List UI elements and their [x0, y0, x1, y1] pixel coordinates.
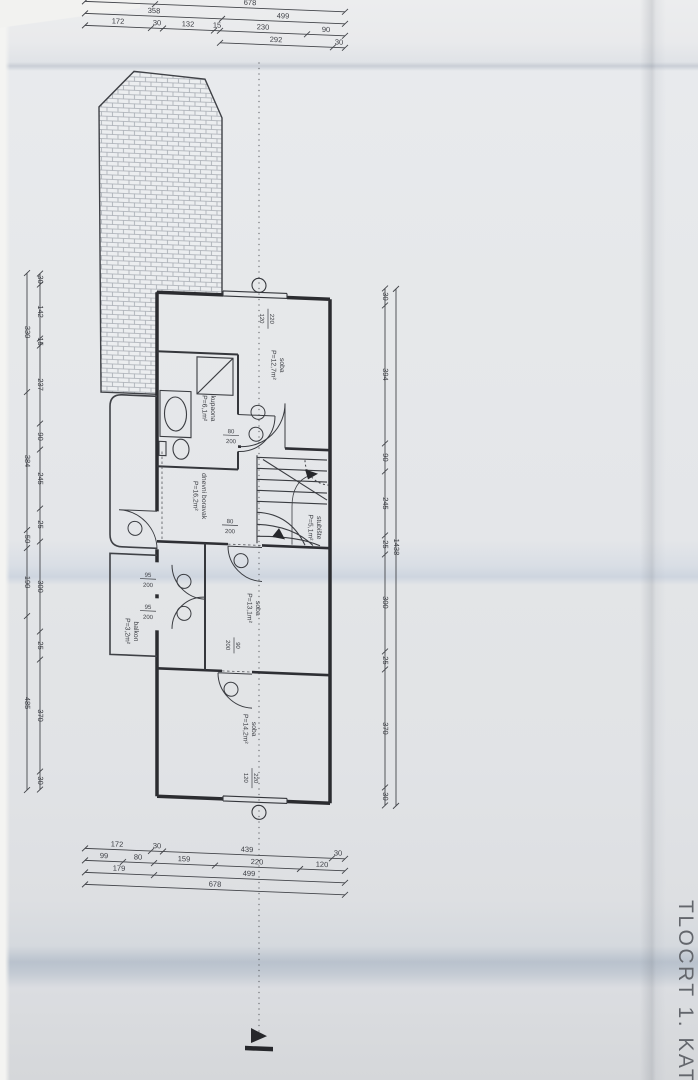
dim-label: 190 [23, 576, 32, 589]
svg-text:80: 80 [228, 429, 235, 435]
dim-label: 499 [243, 869, 256, 878]
dim-label: 370 [36, 709, 45, 722]
dim-label: 172 [112, 16, 125, 25]
section-line [245, 62, 273, 1052]
svg-text:95: 95 [145, 605, 152, 611]
dim-label: 25 [381, 656, 390, 665]
dim-label: 25 [381, 540, 390, 549]
dim-label: 50 [23, 535, 32, 544]
room-label: sobaP=12,7m² [270, 350, 285, 381]
terrace-hatch [99, 70, 222, 397]
svg-text:200: 200 [225, 529, 236, 535]
opening-dashes [162, 451, 262, 672]
room-label: sobaP=14,2m² [242, 714, 257, 745]
dim-label: 172 [111, 839, 124, 848]
window-top [223, 291, 287, 299]
curved-bay-wall [110, 394, 157, 548]
dim-label: 30 [335, 37, 343, 46]
dimension-chain-right: 30 394 90 245 25 300 25 370 30 1438 [381, 285, 401, 809]
room-label: sobaP=13,1m² [246, 593, 261, 624]
dim-label: 245 [381, 497, 390, 510]
svg-text:200: 200 [226, 439, 237, 445]
room-label: kupaonaP=6,1m² [201, 395, 216, 422]
dim-label: 292 [270, 35, 283, 44]
opening-label: 95 200 [140, 605, 156, 622]
svg-text:120: 120 [242, 773, 248, 784]
dim-label: 132 [182, 19, 195, 28]
dimension-chain-bottom: 172 30 439 30 99 80 159 220 120 179 499 … [82, 838, 348, 898]
room-label: stubišteP=5,1m² [307, 514, 322, 541]
dim-label: 142 [36, 305, 45, 318]
dimension-chain-top: 179 678 358 499 172 30 132 15 230 90 292… [82, 0, 348, 51]
dim-label: 485 [23, 697, 32, 710]
svg-text:90: 90 [234, 642, 240, 650]
dim-label: 120 [316, 860, 329, 869]
dim-label: 439 [241, 845, 254, 854]
dim-label: 300 [381, 596, 390, 609]
dim-label: 245 [36, 472, 45, 485]
opening-label: 220 120 [258, 308, 274, 329]
dim-label: 99 [100, 851, 108, 860]
dim-label: 330 [23, 326, 32, 339]
dim-label: 237 [36, 378, 45, 391]
svg-text:200: 200 [143, 615, 154, 621]
svg-text:120: 120 [258, 313, 264, 324]
dim-label: 300 [36, 580, 45, 593]
dim-label: 25 [36, 520, 45, 529]
svg-text:220: 220 [268, 314, 274, 325]
dim-label: 30 [381, 292, 390, 301]
dim-label: 179 [114, 0, 127, 2]
room-label: balkonP=3,2m² [124, 618, 139, 645]
svg-text:200: 200 [143, 583, 154, 589]
drawing-sheet: sobaP=12,7m² kupaonaP=6,1m² dnevni borav… [0, 0, 698, 1080]
dim-label: 80 [134, 852, 142, 861]
dim-label: 90 [36, 432, 45, 441]
plan-svg: sobaP=12,7m² kupaonaP=6,1m² dnevni borav… [0, 0, 698, 1080]
dim-label: 358 [148, 6, 161, 15]
dim-label: 90 [381, 453, 390, 462]
door-knob-circles [128, 400, 265, 698]
dim-label: 384 [23, 455, 32, 468]
dim-label: 15 [213, 21, 221, 30]
dim-label: 30 [153, 18, 161, 27]
section-circle-top [252, 278, 266, 293]
opening-label: 80 200 [222, 519, 238, 536]
door-swings [119, 397, 329, 711]
dim-label: 220 [251, 857, 264, 866]
opening-label: 80 200 [223, 429, 239, 446]
dim-label: 30 [381, 792, 390, 801]
opening-label: 220 120 [242, 768, 258, 789]
dim-label: 179 [113, 863, 126, 872]
dim-label: 30 [36, 776, 45, 785]
dim-label: 370 [381, 722, 390, 735]
svg-text:95: 95 [145, 573, 152, 579]
opening-labels: 80 200 80 200 95 200 95 200 90 [140, 304, 274, 789]
floor-plan-drawing: sobaP=12,7m² kupaonaP=6,1m² dnevni borav… [0, 0, 698, 1080]
window-bottom [223, 796, 287, 804]
opening-label: 90 200 [224, 637, 240, 654]
bathroom-fixtures [159, 355, 233, 461]
svg-text:220: 220 [252, 773, 258, 784]
svg-text:200: 200 [224, 640, 230, 651]
dimension-chain-left: 330 384 50 190 485 30 142 15 237 90 245 … [23, 270, 45, 794]
dim-label: 159 [178, 854, 191, 863]
room-label: dnevni boravakP=16,2m² [192, 473, 207, 520]
dim-label: 30 [334, 848, 342, 857]
dim-label: 30 [36, 275, 45, 284]
sheet-title: TLOCRT 1. KATA [673, 900, 697, 1080]
dim-label: 15 [36, 337, 45, 346]
dim-label: 90 [322, 25, 330, 34]
dim-label: 394 [381, 368, 390, 381]
dim-label: 25 [36, 641, 45, 650]
dim-label: 1438 [392, 538, 401, 555]
dim-label: 30 [153, 841, 161, 850]
dim-label: 678 [209, 879, 222, 888]
section-circle-bottom [252, 805, 266, 820]
opening-label: 95 200 [140, 573, 156, 590]
toilet-icon [173, 439, 189, 460]
dim-label: 678 [244, 0, 257, 7]
dim-label: 499 [277, 11, 290, 20]
dim-label: 230 [257, 22, 270, 31]
svg-text:80: 80 [227, 519, 234, 525]
